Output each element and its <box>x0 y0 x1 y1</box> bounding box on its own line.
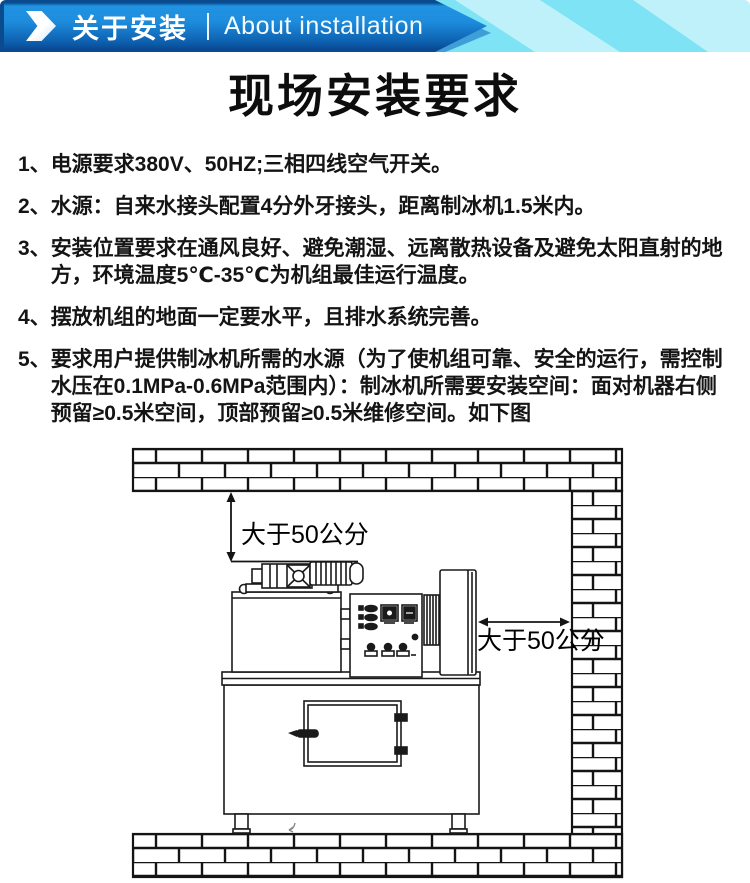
right-wall <box>572 491 622 877</box>
machine-door <box>288 701 407 766</box>
installation-clearance-diagram: 大于50公分 大于50公分 <box>0 442 750 880</box>
chevron-right-icon <box>26 11 56 41</box>
requirement-item-2: 2、 水源：自来水接头配置4分外牙接头，距离制冰机1.5米内。 <box>18 193 738 220</box>
connector-bar <box>341 639 350 649</box>
top-clearance-label: 大于50公分 <box>241 521 369 549</box>
section-header-banner: 关于安装 About installation <box>0 0 750 52</box>
display-screen-2 <box>402 605 417 623</box>
requirement-item-3: 3、 安装位置要求在通风良好、避免潮湿、远离散热设备及避免太阳直射的地方，环境温… <box>18 235 738 289</box>
requirement-item-4: 4、 摆放机组的地面一定要水平，且排水系统完善。 <box>18 304 738 331</box>
item-number: 4、 <box>18 304 51 331</box>
banner-ribbon: 关于安装 About installation <box>0 0 750 52</box>
ceiling-wall <box>133 449 622 491</box>
condenser-fins <box>424 595 441 645</box>
item-text: 摆放机组的地面一定要水平，且排水系统完善。 <box>51 304 738 331</box>
drain-mark <box>289 823 295 832</box>
indicator-lights <box>359 606 377 630</box>
requirement-item-1: 1、 电源要求380V、50HZ;三相四线空气开关。 <box>18 151 738 178</box>
item-text: 安装位置要求在通风良好、避免潮湿、远离散热设备及避免太阳直射的地方，环境温度5℃… <box>51 235 738 289</box>
fan-housing-panel <box>440 570 476 675</box>
requirement-item-5: 5、 要求用户提供制冰机所需的水源（为了使机组可靠、安全的运行，需控制水压在0.… <box>18 346 738 427</box>
item-number: 1、 <box>18 151 51 178</box>
machine-foot-right <box>450 814 467 835</box>
item-number: 5、 <box>18 346 51 427</box>
item-text: 要求用户提供制冰机所需的水源（为了使机组可靠、安全的运行，需控制水压在0.1MP… <box>51 346 738 427</box>
machine-base-cabinet <box>222 672 480 835</box>
display-screen-1 <box>381 605 398 623</box>
banner-title-zh: 关于安装 <box>72 7 188 46</box>
floor-wall <box>133 834 622 877</box>
page: 关于安装 About installation 现场安装要求 1、 电源要求38… <box>0 0 750 883</box>
key-switch <box>412 635 417 640</box>
banner-title-en: About installation <box>224 12 423 41</box>
control-panel <box>350 594 422 677</box>
item-text: 电源要求380V、50HZ;三相四线空气开关。 <box>51 151 738 178</box>
ice-machine <box>222 562 480 835</box>
fan-guard <box>287 565 310 587</box>
item-number: 2、 <box>18 193 51 220</box>
right-clearance-label: 大于50公分 <box>477 627 605 655</box>
right-clearance-arrow <box>478 618 570 627</box>
evaporator-box <box>232 585 341 673</box>
banner-divider <box>207 13 209 40</box>
item-text: 水源：自来水接头配置4分外牙接头，距离制冰机1.5米内。 <box>51 193 738 220</box>
requirements-list: 1、 电源要求380V、50HZ;三相四线空气开关。 2、 水源：自来水接头配置… <box>18 151 738 427</box>
connector-bar <box>341 609 350 619</box>
item-number: 3、 <box>18 235 51 289</box>
gear-motor <box>246 562 363 592</box>
page-title: 现场安装要求 <box>0 69 750 124</box>
machine-foot-left <box>233 814 250 835</box>
